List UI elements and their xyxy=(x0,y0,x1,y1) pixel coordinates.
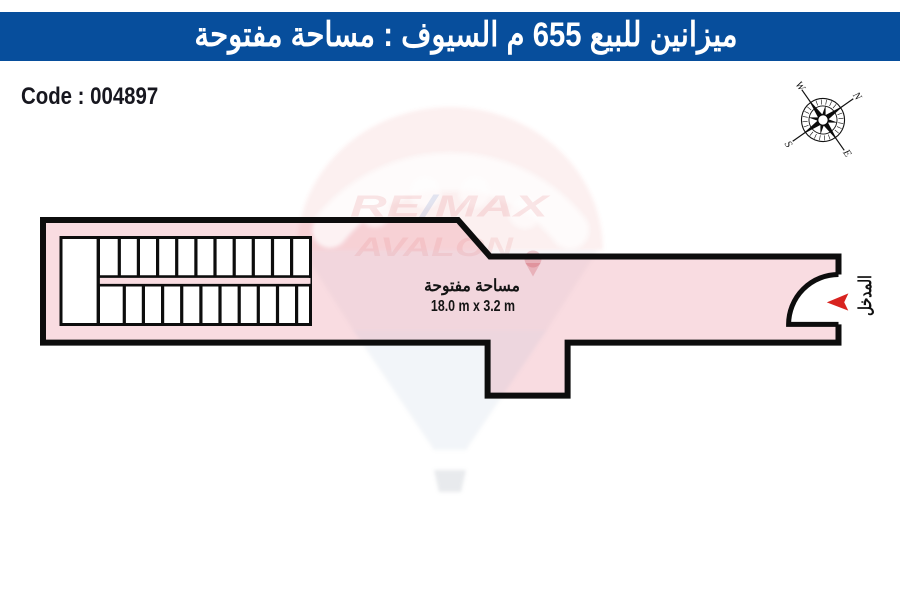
svg-text:S: S xyxy=(782,139,794,150)
svg-text:E: E xyxy=(840,147,854,160)
svg-text:W: W xyxy=(793,80,808,95)
svg-text:N: N xyxy=(850,90,864,104)
